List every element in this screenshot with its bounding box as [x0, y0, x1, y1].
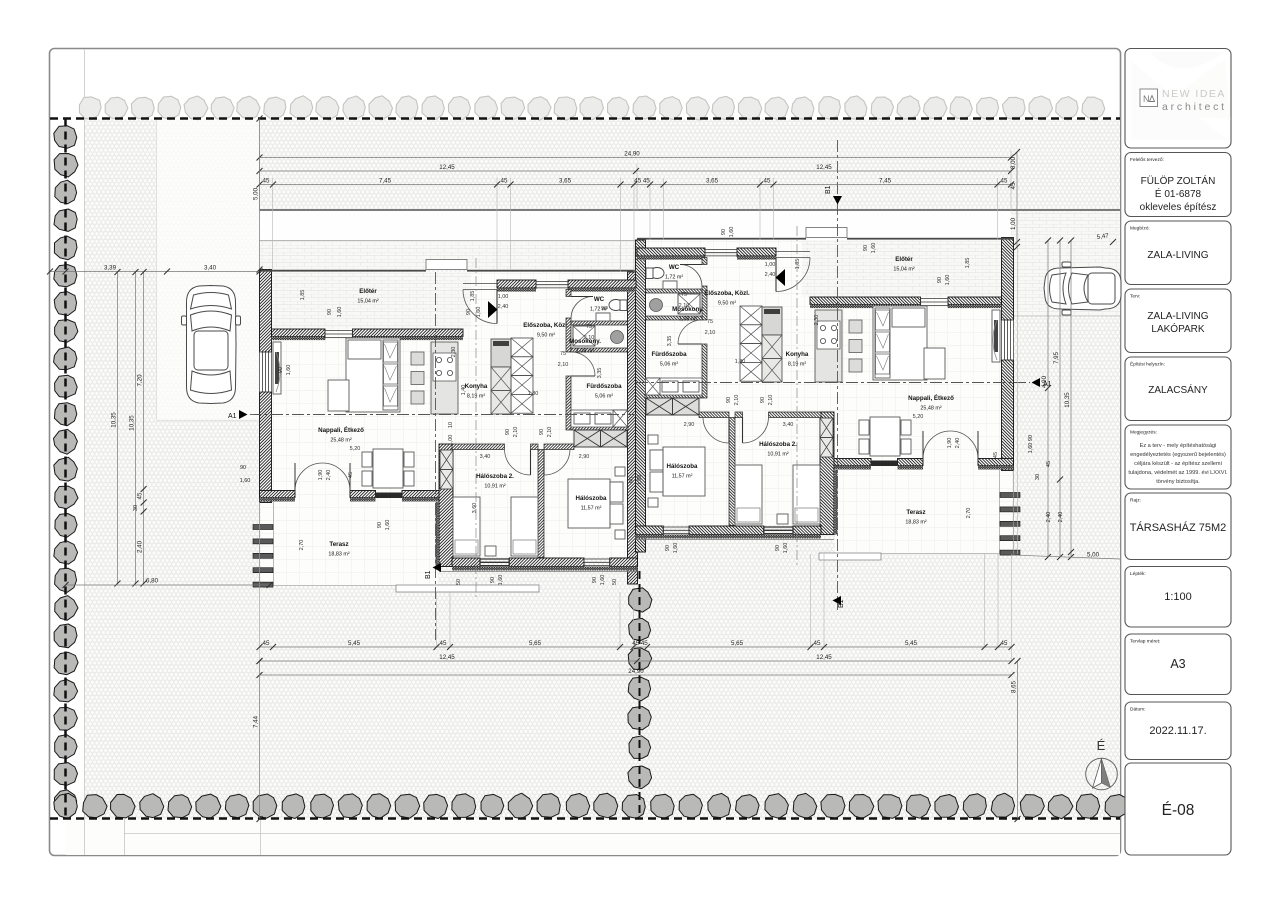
- svg-text:1,60: 1,60: [871, 243, 877, 254]
- svg-text:3,35: 3,35: [667, 336, 673, 347]
- svg-text:90: 90: [629, 477, 635, 483]
- svg-text:5,00: 5,00: [1087, 552, 1100, 559]
- svg-text:1,60: 1,60: [476, 307, 482, 318]
- svg-text:A3: A3: [1170, 657, 1185, 671]
- svg-text:Előszoba, Közl.: Előszoba, Közl.: [704, 290, 750, 297]
- svg-text:30: 30: [133, 505, 139, 511]
- svg-text:A1: A1: [228, 413, 237, 420]
- svg-text:törvény biztosítja.: törvény biztosítja.: [1156, 479, 1200, 485]
- svg-text:NEW IDEA: NEW IDEA: [1162, 88, 1226, 100]
- svg-text:Felelős tervező:: Felelős tervező:: [1130, 157, 1164, 163]
- svg-text:5,20: 5,20: [350, 446, 361, 452]
- svg-text:90: 90: [539, 429, 545, 435]
- svg-text:45: 45: [1010, 182, 1017, 189]
- svg-text:11,57 m²: 11,57 m²: [581, 506, 602, 512]
- svg-text:Terasz: Terasz: [329, 541, 348, 548]
- svg-text:1,00: 1,00: [1010, 217, 1017, 230]
- svg-text:É: É: [1097, 738, 1106, 753]
- svg-text:7,20: 7,20: [137, 374, 144, 387]
- svg-text:45: 45: [348, 472, 354, 478]
- svg-text:2,70: 2,70: [966, 508, 972, 519]
- svg-text:75: 75: [560, 351, 566, 357]
- svg-text:1,00: 1,00: [448, 435, 454, 446]
- svg-text:Terasz: Terasz: [906, 509, 925, 516]
- svg-text:75: 75: [681, 292, 687, 298]
- svg-text:9,50 m²: 9,50 m²: [718, 301, 736, 307]
- svg-text:90: 90: [1028, 435, 1034, 441]
- svg-text:ZALACSÁNY: ZALACSÁNY: [1148, 383, 1208, 396]
- svg-text:90: 90: [240, 465, 246, 471]
- svg-text:ZALA-LIVING: ZALA-LIVING: [1147, 250, 1208, 261]
- svg-text:1,85: 1,85: [300, 290, 306, 301]
- svg-text:2,90: 2,90: [579, 454, 590, 460]
- svg-text:45: 45: [1001, 178, 1008, 185]
- svg-text:Előtér: Előtér: [895, 256, 913, 263]
- svg-text:90: 90: [937, 277, 943, 283]
- svg-text:1,60: 1,60: [385, 520, 391, 531]
- svg-text:75: 75: [586, 324, 592, 330]
- svg-text:2,30: 2,30: [814, 315, 820, 326]
- svg-text:2,30: 2,30: [451, 347, 457, 358]
- svg-text:engedélyeztetés (egyszerű beje: engedélyeztetés (egyszerű bejelentés): [1130, 452, 1226, 458]
- svg-text:2,40: 2,40: [326, 470, 332, 481]
- svg-text:12,45: 12,45: [439, 164, 455, 171]
- svg-text:B1: B1: [425, 570, 432, 579]
- svg-text:45: 45: [993, 452, 999, 458]
- svg-text:1,85: 1,85: [965, 258, 971, 269]
- svg-text:10: 10: [448, 422, 454, 428]
- svg-text:45 45: 45 45: [634, 178, 650, 185]
- svg-text:50: 50: [612, 579, 618, 585]
- svg-text:7,44: 7,44: [253, 715, 260, 728]
- svg-text:1,60: 1,60: [498, 575, 504, 586]
- svg-text:8,65: 8,65: [1011, 680, 1018, 693]
- svg-text:1,00: 1,00: [765, 262, 776, 268]
- svg-text:Ez a terv - mely építéshatóság: Ez a terv - mely építéshatósági: [1140, 443, 1217, 449]
- svg-text:B1: B1: [838, 599, 845, 608]
- svg-text:1,60: 1,60: [945, 275, 951, 286]
- svg-text:1,80: 1,80: [735, 359, 746, 365]
- svg-text:B1: B1: [825, 185, 832, 194]
- svg-text:9,50 m²: 9,50 m²: [537, 333, 555, 339]
- svg-text:LAKÓPARK: LAKÓPARK: [1151, 322, 1204, 335]
- svg-text:5,45: 5,45: [905, 640, 918, 647]
- svg-text:Lépték:: Lépték:: [1130, 571, 1146, 577]
- svg-text:Nappali, Étkező: Nappali, Étkező: [908, 394, 954, 402]
- svg-text:30: 30: [1035, 474, 1041, 480]
- svg-text:2,40: 2,40: [1058, 512, 1064, 523]
- svg-text:50: 50: [456, 579, 462, 585]
- svg-text:3,40: 3,40: [480, 454, 491, 460]
- svg-text:Konyha: Konyha: [465, 383, 488, 390]
- svg-text:2,10: 2,10: [558, 362, 569, 368]
- svg-text:Fürdőszoba: Fürdőszoba: [651, 351, 687, 358]
- svg-text:10,35: 10,35: [129, 415, 136, 431]
- svg-text:1,60: 1,60: [1028, 443, 1034, 454]
- svg-text:1,85: 1,85: [795, 259, 801, 270]
- svg-text:Előtér: Előtér: [359, 288, 377, 295]
- svg-text:N: N: [1143, 94, 1150, 104]
- svg-text:2,10: 2,10: [705, 330, 716, 336]
- svg-text:5,65: 5,65: [731, 640, 744, 647]
- svg-text:Dátum:: Dátum:: [1130, 707, 1145, 713]
- svg-text:90: 90: [490, 577, 496, 583]
- svg-text:10,35: 10,35: [111, 412, 118, 428]
- svg-text:3,65: 3,65: [559, 178, 572, 185]
- svg-text:15,04 m²: 15,04 m²: [357, 299, 378, 305]
- svg-text:1,85: 1,85: [470, 291, 476, 302]
- svg-text:É-08: É-08: [1162, 802, 1195, 819]
- svg-text:2,40: 2,40: [955, 438, 961, 449]
- svg-text:3,60: 3,60: [472, 503, 478, 514]
- svg-text:architect: architect: [1162, 101, 1227, 113]
- svg-text:90: 90: [278, 367, 284, 373]
- svg-text:8,19 m²: 8,19 m²: [467, 394, 485, 400]
- svg-text:Nappali, Étkező: Nappali, Étkező: [318, 426, 364, 434]
- svg-text:2,40: 2,40: [1046, 512, 1052, 523]
- svg-text:24,90: 24,90: [628, 668, 644, 675]
- svg-text:1,60: 1,60: [637, 475, 643, 486]
- svg-text:8,00: 8,00: [1010, 156, 1017, 169]
- svg-text:FÜLÖP ZOLTÁN: FÜLÖP ZOLTÁN: [1141, 174, 1216, 187]
- svg-text:90: 90: [466, 309, 472, 315]
- svg-text:3,65: 3,65: [706, 178, 719, 185]
- svg-text:Mosókony.: Mosókony.: [569, 338, 601, 345]
- svg-text:Építési helyszín:: Építési helyszín:: [1130, 361, 1165, 368]
- svg-text:2,10: 2,10: [547, 427, 553, 438]
- svg-text:2,40: 2,40: [765, 272, 776, 278]
- svg-text:12,45: 12,45: [816, 654, 832, 661]
- svg-text:1,90: 1,90: [318, 470, 324, 481]
- svg-text:11,57 m²: 11,57 m²: [672, 474, 693, 480]
- svg-text:Előszoba, Közl.: Előszoba, Közl.: [523, 322, 569, 329]
- svg-text:okleveles építész: okleveles építész: [1140, 202, 1217, 213]
- svg-text:90: 90: [665, 545, 671, 551]
- svg-text:6,80: 6,80: [146, 578, 159, 585]
- svg-text:2,40: 2,40: [137, 540, 144, 553]
- svg-text:1,60: 1,60: [240, 478, 251, 484]
- svg-text:3,40: 3,40: [783, 422, 794, 428]
- svg-text:1,00: 1,00: [498, 294, 509, 300]
- svg-text:1,60: 1,60: [600, 575, 606, 586]
- svg-text:45 45: 45 45: [632, 640, 648, 647]
- svg-text:Hálószoba 2.: Hálószoba 2.: [759, 441, 797, 448]
- svg-text:90: 90: [327, 309, 333, 315]
- svg-text:TÁRSASHÁZ 75M2: TÁRSASHÁZ 75M2: [1130, 521, 1227, 534]
- svg-text:25,48 m²: 25,48 m²: [920, 406, 941, 412]
- svg-text:Tervlap méret:: Tervlap méret:: [1130, 639, 1160, 645]
- svg-text:3,40: 3,40: [204, 265, 217, 272]
- svg-text:Konyha: Konyha: [786, 351, 809, 358]
- svg-text:2,10: 2,10: [768, 395, 774, 406]
- svg-text:90: 90: [377, 522, 383, 528]
- svg-text:5,65: 5,65: [529, 640, 542, 647]
- svg-text:90: 90: [775, 545, 781, 551]
- svg-text:10,91 m²: 10,91 m²: [767, 452, 788, 458]
- svg-text:Hálószoba 2.: Hálószoba 2.: [476, 473, 514, 480]
- svg-text:90: 90: [721, 229, 727, 235]
- svg-text:7,45: 7,45: [879, 178, 892, 185]
- svg-text:24,90: 24,90: [624, 151, 640, 158]
- svg-text:45: 45: [1001, 640, 1008, 647]
- svg-text:tulajdona, védelmét az 1999. é: tulajdona, védelmét az 1999. évi LXXVI.: [1128, 470, 1228, 476]
- svg-text:45: 45: [814, 640, 821, 647]
- svg-text:5,06 m²: 5,06 m²: [660, 362, 678, 368]
- svg-text:1,60: 1,60: [783, 543, 789, 554]
- svg-text:90: 90: [863, 245, 869, 251]
- svg-text:3,39: 3,39: [104, 265, 117, 272]
- svg-text:1,60: 1,60: [673, 543, 679, 554]
- svg-text:Megbízó:: Megbízó:: [1130, 226, 1150, 232]
- svg-text:2,40: 2,40: [498, 304, 509, 310]
- svg-text:5,00: 5,00: [253, 187, 260, 200]
- svg-text:45: 45: [764, 178, 771, 185]
- svg-text:18,83 m²: 18,83 m²: [328, 552, 349, 558]
- svg-text:1,60: 1,60: [337, 307, 343, 318]
- svg-text:Hálószoba: Hálószoba: [576, 495, 608, 502]
- svg-text:É 01-6878: É 01-6878: [1155, 187, 1202, 200]
- svg-text:90: 90: [505, 429, 511, 435]
- svg-text:2,90: 2,90: [684, 422, 695, 428]
- svg-text:Fürdőszoba: Fürdőszoba: [586, 383, 622, 390]
- svg-text:1:100: 1:100: [1164, 591, 1192, 603]
- svg-text:90: 90: [592, 577, 598, 583]
- svg-text:1,90: 1,90: [947, 438, 953, 449]
- svg-text:5,45: 5,45: [348, 640, 361, 647]
- svg-text:Mosókony.: Mosókony.: [672, 306, 704, 313]
- svg-text:Rajz:: Rajz:: [1130, 498, 1141, 504]
- svg-text:10,91 m²: 10,91 m²: [484, 484, 505, 490]
- svg-text:1,72 m²: 1,72 m²: [590, 307, 608, 313]
- svg-text:1,72 m²: 1,72 m²: [665, 275, 683, 281]
- svg-text:15,04 m²: 15,04 m²: [893, 267, 914, 273]
- svg-text:10,35: 10,35: [1064, 392, 1071, 408]
- svg-text:5,06 m²: 5,06 m²: [595, 394, 613, 400]
- svg-text:WC: WC: [669, 264, 680, 271]
- svg-text:45: 45: [263, 640, 270, 647]
- svg-text:45: 45: [263, 178, 270, 185]
- svg-text:céljára készült - az építész s: céljára készült - az építész szellemi: [1134, 461, 1222, 467]
- svg-text:Hálószoba: Hálószoba: [667, 463, 699, 470]
- svg-text:1,08 m²: 1,08 m²: [679, 317, 697, 323]
- svg-text:3,35: 3,35: [597, 368, 603, 379]
- svg-text:8,19 m²: 8,19 m²: [788, 362, 806, 368]
- svg-text:18,83 m²: 18,83 m²: [905, 520, 926, 526]
- svg-text:45: 45: [137, 492, 144, 499]
- svg-text:Megjegyzés:: Megjegyzés:: [1130, 430, 1157, 436]
- svg-text:45: 45: [501, 178, 508, 185]
- svg-text:45: 45: [1046, 461, 1052, 467]
- svg-text:1,80: 1,80: [528, 391, 539, 397]
- svg-text:7,95: 7,95: [1053, 351, 1060, 364]
- svg-text:90: 90: [760, 397, 766, 403]
- svg-text:1,60: 1,60: [286, 365, 292, 376]
- svg-text:5,20: 5,20: [913, 414, 924, 420]
- svg-text:ZALA-LIVING: ZALA-LIVING: [1147, 311, 1208, 322]
- svg-text:45: 45: [440, 640, 447, 647]
- svg-text:4,90: 4,90: [1041, 375, 1048, 388]
- svg-text:Terv:: Terv:: [1130, 294, 1140, 300]
- svg-text:2,70: 2,70: [299, 540, 305, 551]
- svg-text:75: 75: [707, 319, 713, 325]
- svg-text:25,48 m²: 25,48 m²: [330, 438, 351, 444]
- svg-text:12,45: 12,45: [439, 654, 455, 661]
- svg-text:WC: WC: [594, 296, 605, 303]
- svg-text:2022.11.17.: 2022.11.17.: [1149, 725, 1206, 737]
- svg-text:2,10: 2,10: [513, 427, 519, 438]
- svg-text:1,60: 1,60: [729, 227, 735, 238]
- svg-text:1,08 m²: 1,08 m²: [576, 349, 594, 355]
- svg-text:90: 90: [726, 397, 732, 403]
- svg-text:12,45: 12,45: [816, 164, 832, 171]
- svg-text:2,10: 2,10: [734, 395, 740, 406]
- svg-text:7,45: 7,45: [379, 178, 392, 185]
